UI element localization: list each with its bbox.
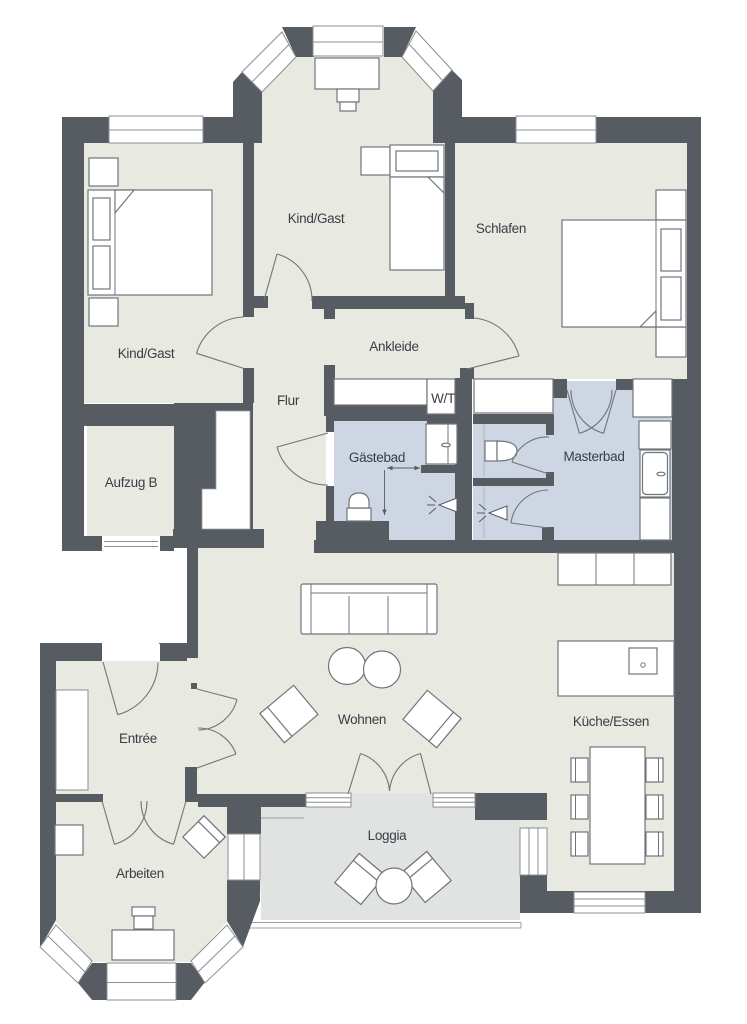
svg-text:Schlafen: Schlafen [476,221,526,236]
svg-text:Loggia: Loggia [368,828,408,843]
svg-text:Masterbad: Masterbad [563,449,624,464]
svg-text:Ankleide: Ankleide [369,339,418,354]
svg-text:Kind/Gast: Kind/Gast [288,211,345,226]
svg-text:Arbeiten: Arbeiten [116,866,164,881]
svg-text:Aufzug B: Aufzug B [105,475,158,490]
svg-text:Kind/Gast: Kind/Gast [118,346,175,361]
svg-text:Wohnen: Wohnen [338,712,386,727]
svg-text:Küche/Essen: Küche/Essen [573,714,649,729]
svg-text:Entrée: Entrée [119,731,157,746]
svg-text:Flur: Flur [277,393,300,408]
svg-text:Gästebad: Gästebad [349,450,405,465]
svg-text:W/T: W/T [431,391,455,406]
